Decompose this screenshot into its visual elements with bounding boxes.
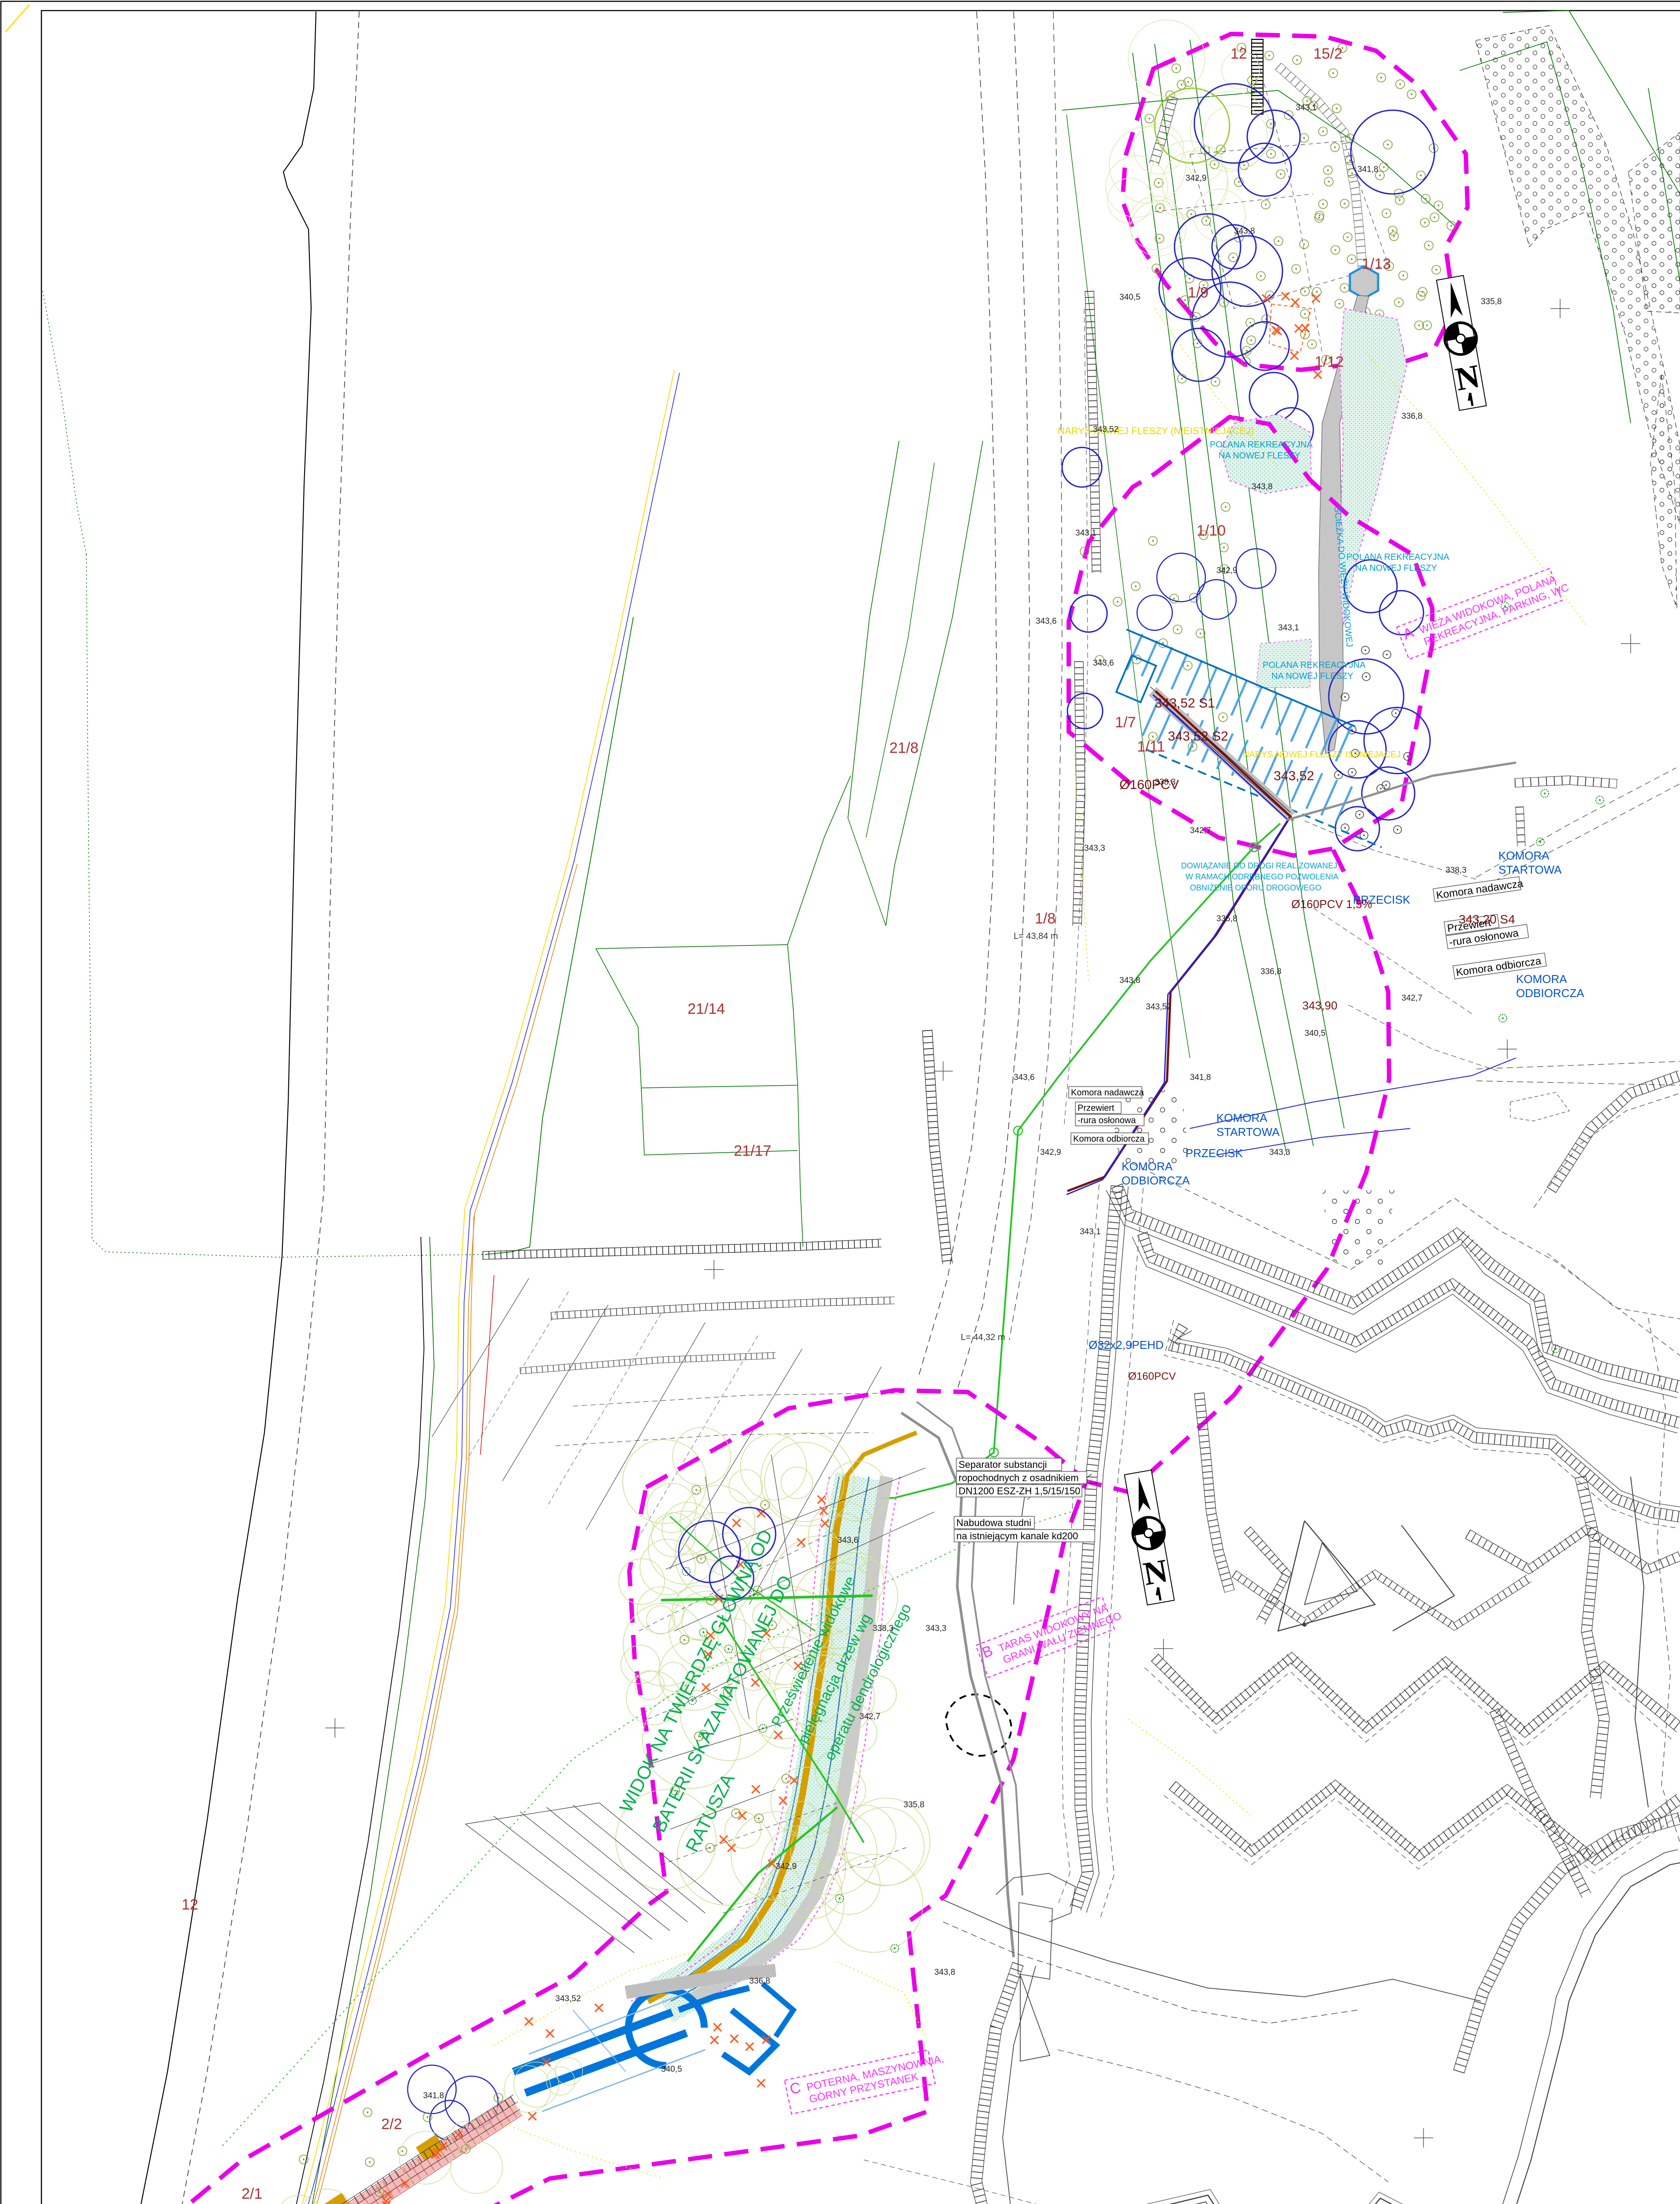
svg-text:338,3: 338,3 bbox=[1155, 778, 1176, 787]
svg-text:340,5: 340,5 bbox=[1305, 1029, 1326, 1038]
svg-text:1/11: 1/11 bbox=[1137, 738, 1165, 755]
svg-text:343,6: 343,6 bbox=[1036, 617, 1057, 626]
svg-text:342,9: 342,9 bbox=[1040, 1148, 1061, 1157]
svg-text:15/2: 15/2 bbox=[1313, 45, 1342, 62]
svg-text:KOMORA: KOMORA bbox=[1216, 1111, 1267, 1124]
svg-text:Ø160PCV: Ø160PCV bbox=[1128, 1370, 1176, 1382]
svg-text:STARTOWA: STARTOWA bbox=[1216, 1125, 1280, 1139]
svg-text:343,1: 343,1 bbox=[1278, 623, 1299, 633]
svg-text:ODBIORCZA: ODBIORCZA bbox=[1122, 1174, 1190, 1187]
svg-text:KOMORA: KOMORA bbox=[1516, 972, 1567, 986]
svg-text:NA NOWEJ FLESZY: NA NOWEJ FLESZY bbox=[1219, 451, 1301, 461]
svg-text:336,8: 336,8 bbox=[1260, 967, 1282, 976]
svg-text:338,3: 338,3 bbox=[1446, 866, 1467, 875]
svg-text:343,52: 343,52 bbox=[1274, 769, 1314, 783]
svg-text:336,8: 336,8 bbox=[749, 1977, 770, 1986]
svg-text:1/9: 1/9 bbox=[1188, 284, 1208, 301]
svg-text:POLANA REKREACYJNA: POLANA REKREACYJNA bbox=[1210, 440, 1313, 450]
svg-text:343,3: 343,3 bbox=[1269, 1148, 1290, 1157]
svg-text:21/17: 21/17 bbox=[734, 1143, 771, 1159]
svg-text:Ø32x2,9PEHD: Ø32x2,9PEHD bbox=[1089, 1338, 1164, 1351]
svg-text:341,8: 341,8 bbox=[423, 2091, 444, 2100]
svg-text:343,20 S4: 343,20 S4 bbox=[1459, 912, 1515, 926]
svg-text:343,52 S1: 343,52 S1 bbox=[1155, 696, 1215, 711]
svg-text:1/13: 1/13 bbox=[1362, 256, 1391, 272]
svg-text:343,52: 343,52 bbox=[555, 1994, 581, 2003]
svg-text:343,8: 343,8 bbox=[1234, 227, 1255, 236]
svg-text:NA NOWEJ FLESZY: NA NOWEJ FLESZY bbox=[1271, 671, 1353, 681]
svg-text:1/7: 1/7 bbox=[1115, 714, 1136, 731]
svg-text:335,8: 335,8 bbox=[903, 1800, 925, 1809]
svg-text:343,3: 343,3 bbox=[925, 1624, 947, 1633]
svg-text:2/1: 2/1 bbox=[242, 2185, 262, 2202]
svg-text:ODBIORCZA: ODBIORCZA bbox=[1516, 987, 1584, 1000]
svg-text:NA NOWEJ FLESZY: NA NOWEJ FLESZY bbox=[1355, 563, 1437, 573]
svg-text:POLANA REKREACYJNA: POLANA REKREACYJNA bbox=[1346, 552, 1450, 562]
svg-text:1/8: 1/8 bbox=[1035, 910, 1056, 927]
svg-text:338,3: 338,3 bbox=[873, 1624, 894, 1633]
svg-text:1/12: 1/12 bbox=[1315, 354, 1344, 370]
svg-text:na istniejącym kanale kd200: na istniejącym kanale kd200 bbox=[956, 1530, 1078, 1541]
svg-text:343,6: 343,6 bbox=[1014, 1073, 1035, 1082]
svg-text:343,1: 343,1 bbox=[1075, 529, 1096, 538]
svg-text:342,9: 342,9 bbox=[1186, 174, 1207, 183]
svg-text:STARTOWA: STARTOWA bbox=[1498, 863, 1562, 876]
svg-text:L= 44,32 m: L= 44,32 m bbox=[961, 1333, 1005, 1342]
svg-text:W RAMACH ODRĘBNEGO POZWOLENIA: W RAMACH ODRĘBNEGO POZWOLENIA bbox=[1186, 872, 1338, 881]
svg-text:343,8: 343,8 bbox=[1119, 976, 1141, 985]
svg-text:Komora nadawcza: Komora nadawcza bbox=[1071, 1088, 1145, 1098]
svg-text:342,9: 342,9 bbox=[776, 1862, 797, 1871]
svg-text:343,90: 343,90 bbox=[1302, 999, 1338, 1012]
svg-text:12: 12 bbox=[182, 1896, 198, 1913]
svg-text:340,5: 340,5 bbox=[1119, 293, 1141, 302]
svg-text:341,8: 341,8 bbox=[1357, 165, 1379, 174]
svg-text:335,8: 335,8 bbox=[1481, 297, 1502, 306]
svg-text:343,6: 343,6 bbox=[1093, 659, 1114, 668]
svg-text:12: 12 bbox=[1230, 45, 1247, 62]
svg-text:343,52 S2: 343,52 S2 bbox=[1168, 729, 1228, 744]
svg-text:-rura osłonowa: -rura osłonowa bbox=[1078, 1116, 1136, 1125]
svg-text:342,7: 342,7 bbox=[1401, 994, 1423, 1003]
svg-text:343,8: 343,8 bbox=[934, 1968, 955, 1977]
svg-text:Ø160PCV 1,5%: Ø160PCV 1,5% bbox=[1291, 897, 1372, 911]
svg-text:Nabudowa studni: Nabudowa studni bbox=[956, 1517, 1031, 1528]
svg-text:DOWIĄZANIE DO DROGI REALIZOWAN: DOWIĄZANIE DO DROGI REALIZOWANEJ bbox=[1181, 861, 1337, 870]
svg-text:342,9: 342,9 bbox=[1216, 566, 1238, 575]
svg-text:21/14: 21/14 bbox=[688, 1001, 725, 1017]
svg-text:343,3: 343,3 bbox=[1084, 844, 1105, 853]
svg-text:OBNIŻENIE OPORU DROGOWEGO: OBNIŻENIE OPORU DROGOWEGO bbox=[1190, 883, 1321, 892]
svg-text:343,1: 343,1 bbox=[1296, 103, 1317, 112]
svg-text:340,5: 340,5 bbox=[661, 2065, 682, 2074]
svg-text:KOMORA: KOMORA bbox=[1498, 849, 1550, 862]
svg-text:POLANA REKREACYJNA: POLANA REKREACYJNA bbox=[1263, 660, 1366, 670]
svg-text:NARYS NOWEJ FLESZY (NIEISTNIEJ: NARYS NOWEJ FLESZY (NIEISTNIEJĄCEJ) bbox=[1058, 425, 1254, 436]
svg-text:335,8: 335,8 bbox=[1216, 914, 1238, 923]
svg-text:343,52: 343,52 bbox=[1146, 1002, 1171, 1012]
svg-text:342,7: 342,7 bbox=[859, 1712, 881, 1721]
svg-text:343,8: 343,8 bbox=[1252, 482, 1273, 491]
svg-text:343,6: 343,6 bbox=[837, 1536, 859, 1545]
svg-text:343,1: 343,1 bbox=[1080, 1227, 1101, 1236]
svg-text:Przewiert: Przewiert bbox=[1078, 1103, 1115, 1113]
svg-text:2/2: 2/2 bbox=[381, 2116, 402, 2133]
svg-text:ropochodnych z osadnikiem: ropochodnych z osadnikiem bbox=[959, 1472, 1079, 1483]
svg-text:PRZECISK: PRZECISK bbox=[1186, 1147, 1243, 1160]
svg-text:1/10: 1/10 bbox=[1197, 522, 1226, 539]
svg-text:KOMORA: KOMORA bbox=[1122, 1160, 1173, 1173]
svg-text:341,8: 341,8 bbox=[1190, 1073, 1211, 1082]
svg-text:Komora odbiorcza: Komora odbiorcza bbox=[1073, 1134, 1145, 1144]
svg-text:342,7: 342,7 bbox=[1190, 826, 1211, 835]
svg-text:L= 43,84 m: L= 43,84 m bbox=[1014, 931, 1058, 941]
svg-text:DN1200 ESZ-ZH 1,5/15/150: DN1200 ESZ-ZH 1,5/15/150 bbox=[959, 1485, 1080, 1497]
svg-text:336,8: 336,8 bbox=[1401, 412, 1423, 421]
svg-text:343,52: 343,52 bbox=[1093, 425, 1119, 434]
svg-text:21/8: 21/8 bbox=[889, 740, 918, 756]
svg-text:Separator substancji: Separator substancji bbox=[959, 1459, 1047, 1470]
svg-text:NARYS NOWEJ FLESZY ISTNIEJĄCEJ: NARYS NOWEJ FLESZY ISTNIEJĄCEJ bbox=[1243, 750, 1401, 759]
